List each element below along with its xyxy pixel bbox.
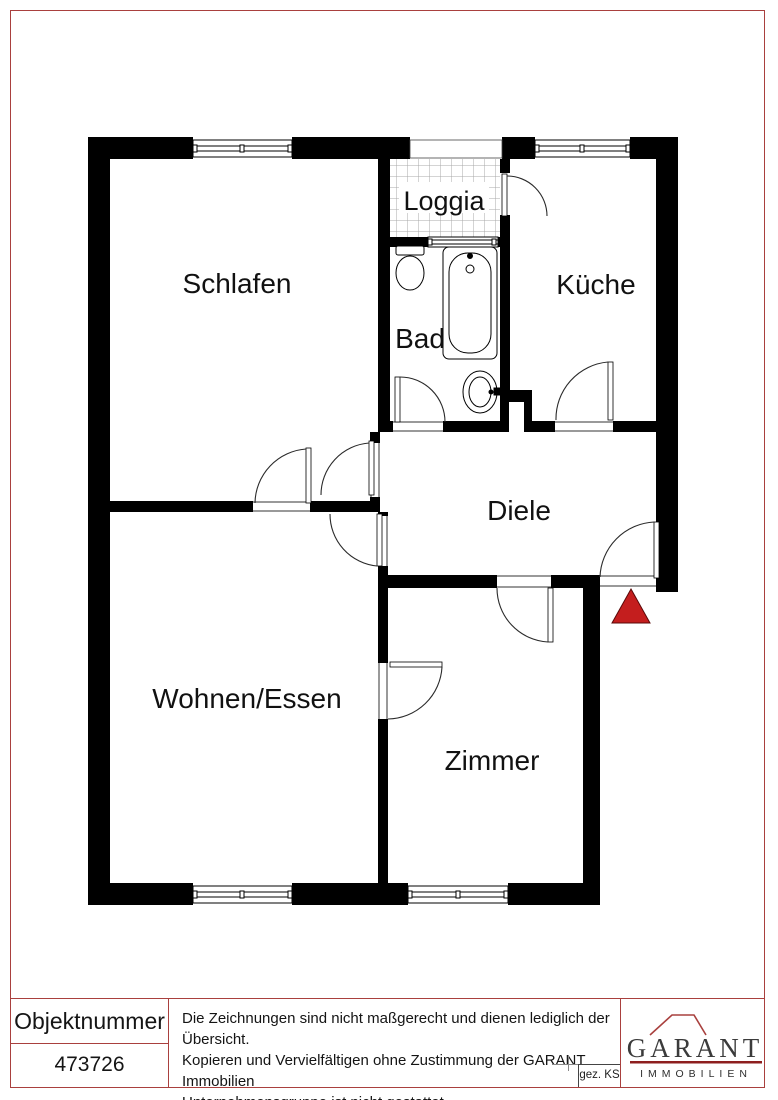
- room-label-diele: Diele: [487, 495, 551, 526]
- logo-roof-icon: [650, 1015, 706, 1035]
- drawn-by-tick-v: [568, 1055, 569, 1071]
- bathtub-icon: [443, 247, 497, 359]
- sink-icon: [463, 371, 503, 413]
- logo-subtitle: IMMOBILIEN: [640, 1068, 752, 1080]
- disclaimer-text: Die Zeichnungen sind nicht maßgerecht un…: [182, 1008, 620, 1100]
- entrance-arrow-icon: [612, 589, 650, 623]
- floorplan-page: Schlafen Loggia Küche Bad Diele Wohnen/E…: [0, 0, 778, 1100]
- room-label-wohnen: Wohnen/Essen: [152, 683, 341, 714]
- object-number-cell: Objektnummer 473726: [11, 999, 169, 1087]
- object-number-label: Objektnummer: [11, 999, 168, 1044]
- drawn-by-box: gez. KS: [578, 1064, 620, 1087]
- object-number-value: 473726: [11, 1044, 168, 1086]
- garant-logo: GARANT IMMOBILIEN: [621, 999, 764, 1086]
- logo-underline: [630, 1061, 762, 1064]
- logo-name: GARANT: [627, 1033, 764, 1063]
- room-label-zimmer: Zimmer: [445, 745, 540, 776]
- room-labels: Schlafen Loggia Küche Bad Diele Wohnen/E…: [152, 186, 635, 776]
- disclaimer-line-3: Unternehmensgruppe ist nicht gestattet.: [182, 1092, 620, 1100]
- footer-table: Objektnummer 473726 Die Zeichnungen sind…: [10, 998, 765, 1088]
- room-label-schlafen: Schlafen: [183, 268, 292, 299]
- logo-cell: GARANT IMMOBILIEN: [621, 999, 764, 1087]
- drawn-by-tick-h: [552, 1064, 578, 1065]
- room-label-kueche: Küche: [556, 269, 635, 300]
- disclaimer-line-1: Die Zeichnungen sind nicht maßgerecht un…: [182, 1008, 620, 1050]
- room-label-loggia: Loggia: [403, 186, 485, 216]
- disclaimer-line-2: Kopieren und Vervielfältigen ohne Zustim…: [182, 1050, 620, 1092]
- floor-plan: Schlafen Loggia Küche Bad Diele Wohnen/E…: [0, 0, 778, 1000]
- room-label-bad: Bad: [395, 323, 445, 354]
- disclaimer-cell: Die Zeichnungen sind nicht maßgerecht un…: [169, 999, 621, 1087]
- toilet-icon: [396, 246, 424, 290]
- duct-notch: [509, 402, 524, 432]
